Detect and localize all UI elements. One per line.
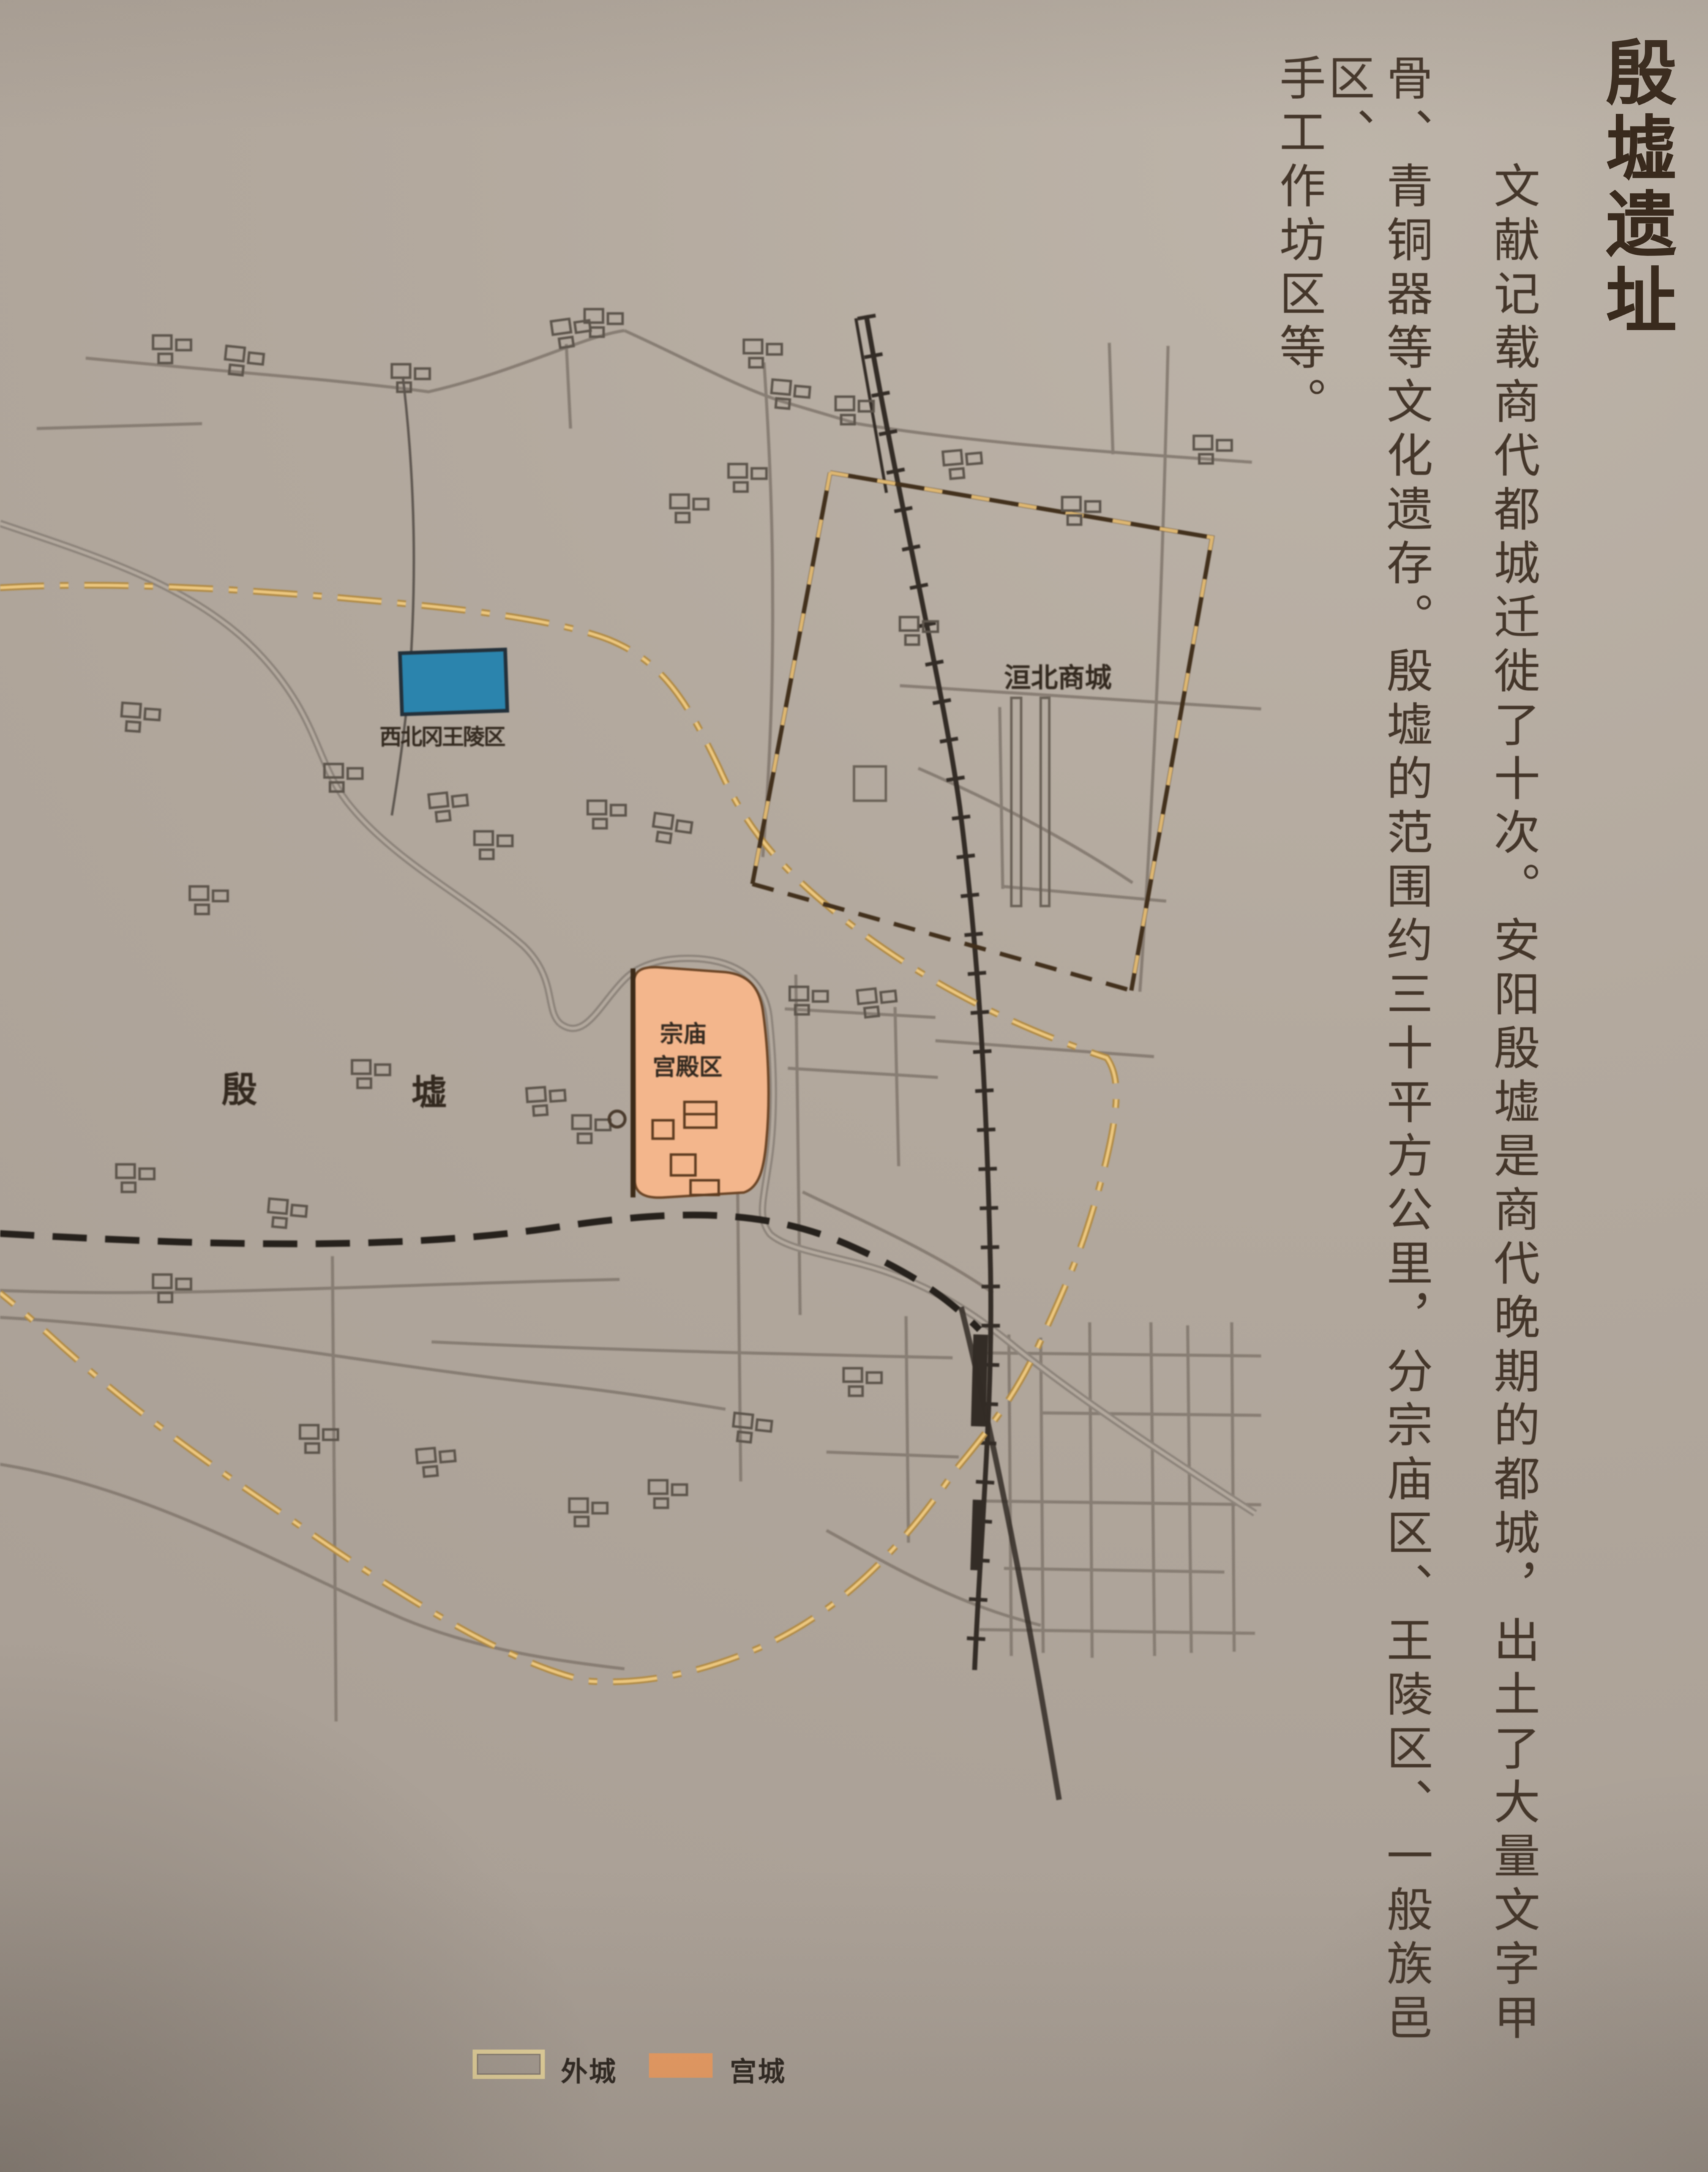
yinxu-site-map: 西北冈王陵区 宗庙 宫殿区 洹北商城 殷 墟: [0, 0, 1708, 2172]
page-title: 殷墟遗址: [1582, 36, 1686, 427]
body-text-column-1: 文献记载商代都城迁徙了十次。安阳殷墟是商代晚期的都城，出土了大量文字甲: [1483, 54, 1541, 2135]
huanbei-city-label: 洹北商城: [1004, 663, 1112, 693]
legend-palace-city-label: 宫城: [730, 2050, 786, 2089]
huanbei-city-wall: [752, 473, 1212, 991]
dashed-black-route: [0, 1215, 979, 1330]
palace-label-line2: 宫殿区: [653, 1055, 722, 1080]
palace-temple-area: [609, 967, 768, 1197]
yinxu-label-xu: 墟: [411, 1073, 447, 1113]
yinxu-label-yin: 殷: [222, 1070, 257, 1110]
railway: [856, 315, 1059, 1800]
legend-outer-city-label: 外城: [561, 2050, 617, 2089]
legend-outer-city-swatch: [473, 2050, 545, 2079]
exhibit-panel: 西北冈王陵区 宗庙 宫殿区 洹北商城 殷 墟 殷墟遗址 文献记载商代都城迁徙了十…: [0, 0, 1708, 2172]
palace-label-line1: 宗庙: [660, 1021, 706, 1047]
legend-palace-city-swatch: [649, 2053, 713, 2078]
royal-cemetery-area: [400, 650, 507, 714]
body-text-column-2: 骨、青铜器等文化遗存。殷墟的范围约三十平方公里，分宗庙区、王陵区、一般族邑区、: [1376, 54, 1434, 2135]
village-icons: [116, 309, 1232, 1526]
body-text-column-3: 手工作坊区等。: [1268, 54, 1327, 2135]
royal-cemetery-label: 西北冈王陵区: [380, 724, 505, 749]
